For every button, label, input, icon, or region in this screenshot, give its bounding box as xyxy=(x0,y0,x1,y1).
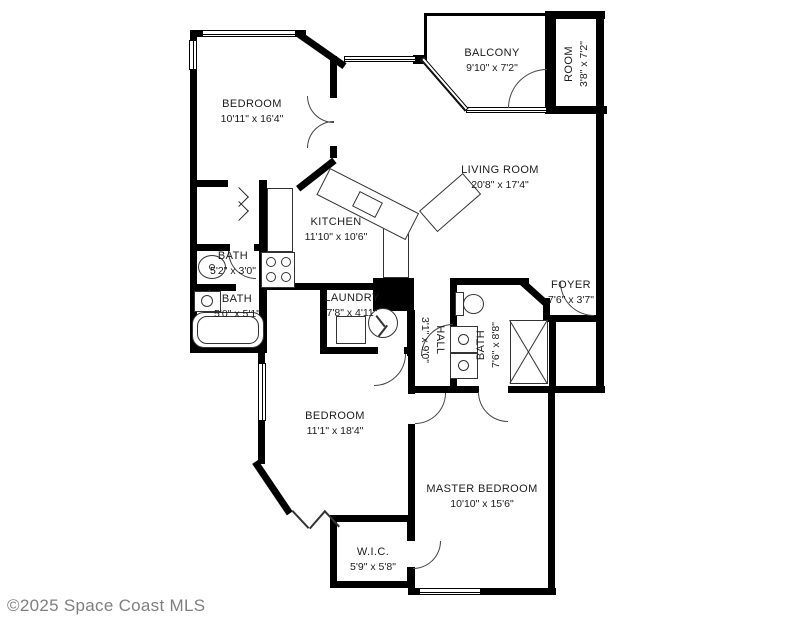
room-dims: 11'1" x 18'4" xyxy=(307,425,364,438)
sink-drain xyxy=(458,360,469,371)
room-label-master-bedroom: MASTER BEDROOM 10'10" x 15'6" xyxy=(426,483,537,511)
door-arc xyxy=(413,541,441,569)
room-name: BATH xyxy=(475,330,489,360)
room-label-bedroom-1: BEDROOM 10'11" x 16'4" xyxy=(221,98,284,126)
door-arc xyxy=(415,393,446,424)
room-dims: 10'11" x 16'4" xyxy=(221,113,284,126)
room-label-bath-2: BATH 5'0" x 5'1" xyxy=(214,293,260,321)
counter xyxy=(267,188,293,252)
wall xyxy=(549,315,601,322)
room-name: HALL xyxy=(432,325,446,354)
room-label-hall: HALL 3'1" x 9'0" xyxy=(418,317,446,363)
wall xyxy=(424,13,427,59)
wall xyxy=(330,515,337,588)
wall xyxy=(295,30,347,69)
room-label-foyer: FOYER 7'6" x 3'7" xyxy=(548,279,594,307)
wall xyxy=(330,515,415,522)
room-dims: 5'0" x 5'1" xyxy=(214,308,260,321)
room-name: FOYER xyxy=(551,279,591,293)
door-arc xyxy=(307,121,334,148)
copyright-watermark: ©2025 Space Coast MLS xyxy=(7,596,205,616)
stove xyxy=(261,252,295,288)
window xyxy=(202,30,296,37)
wall xyxy=(508,386,555,393)
washer xyxy=(336,316,366,344)
room-name: BEDROOM xyxy=(305,410,365,424)
room-label-balcony: BALCONY 9'10" x 7'2" xyxy=(464,47,519,75)
stove-burner xyxy=(281,257,291,267)
room-label-laundry: LAUNDRY 7'8" x 4'11" xyxy=(324,292,379,320)
room-label-wic: W.I.C. 5'9" x 5'8" xyxy=(350,546,396,574)
wall xyxy=(258,420,265,464)
door-arc xyxy=(307,96,334,123)
wall xyxy=(450,278,529,285)
wall xyxy=(596,11,604,392)
wall xyxy=(320,347,378,354)
room-name: LAUNDRY xyxy=(324,292,379,306)
window xyxy=(189,40,197,70)
sink-drain xyxy=(458,334,469,345)
room-dims: 20'8" x 17'4" xyxy=(471,179,529,192)
room-label-master-bath: BATH 7'6" x 8'8" xyxy=(475,322,503,368)
room-name: BATH xyxy=(222,293,252,307)
wall xyxy=(407,567,415,588)
room-dims: 11'10" x 10'6" xyxy=(305,231,368,244)
wall xyxy=(548,386,555,595)
window xyxy=(419,588,481,595)
room-name: BATH xyxy=(218,250,248,264)
stove-burner xyxy=(266,272,276,282)
room-name: MASTER BEDROOM xyxy=(426,483,537,497)
room-dims: 7'6" x 8'8" xyxy=(490,322,503,368)
room-name: BEDROOM xyxy=(222,98,282,112)
stove-burner xyxy=(281,272,291,282)
wall xyxy=(548,386,605,393)
room-dims: 3'8" x 7'2" xyxy=(578,41,591,87)
floor-plan: BEDROOM 10'11" x 16'4" BALCONY 9'10" x 7… xyxy=(0,0,797,640)
window xyxy=(344,56,416,62)
wall xyxy=(407,522,415,541)
wall xyxy=(545,106,607,114)
stove-burner xyxy=(266,257,276,267)
wall xyxy=(321,283,374,290)
room-label-bedroom-2: BEDROOM 11'1" x 18'4" xyxy=(305,410,365,438)
room-name: W.I.C. xyxy=(357,546,389,560)
room-dims: 10'10" x 15'6" xyxy=(450,498,513,511)
island-sink xyxy=(352,191,383,218)
wall xyxy=(549,316,556,388)
room-dims: 3'1" x 9'0" xyxy=(418,317,431,363)
wall xyxy=(330,581,415,588)
bifold-door-icon xyxy=(309,510,326,529)
room-dims: 7'8" x 4'11" xyxy=(327,307,378,320)
room-name: ROOM xyxy=(563,46,577,82)
room-name: LIVING ROOM xyxy=(461,164,539,178)
room-label-storage-room: ROOM 3'8" x 7'2" xyxy=(563,41,591,87)
room-name: BALCONY xyxy=(464,47,519,61)
wall xyxy=(408,386,479,393)
bifold-door-icon xyxy=(229,201,249,221)
wall xyxy=(330,56,337,98)
wall xyxy=(407,310,415,356)
wall xyxy=(252,460,292,515)
wall xyxy=(190,180,228,187)
bifold-door-icon xyxy=(292,510,310,529)
room-name: KITCHEN xyxy=(310,216,361,230)
wall xyxy=(408,424,415,523)
balcony-railing xyxy=(420,57,468,112)
toilet-bowl xyxy=(463,294,484,314)
wall xyxy=(408,353,415,394)
room-dims: 5'2" x 3'0" xyxy=(210,265,256,278)
room-label-bath-1: BATH 5'2" x 3'0" xyxy=(210,250,256,278)
room-dims: 5'9" x 5'8" xyxy=(350,561,396,574)
room-dims: 7'6" x 3'7" xyxy=(548,294,594,307)
room-label-living-room: LIVING ROOM 20'8" x 17'4" xyxy=(461,164,539,192)
door-arc xyxy=(478,392,508,422)
window xyxy=(258,363,266,421)
wall xyxy=(424,13,548,16)
sink-drain xyxy=(201,295,213,307)
door-arc xyxy=(374,354,406,386)
room-label-kitchen: KITCHEN 11'10" x 10'6" xyxy=(305,216,368,244)
room-dims: 9'10" x 7'2" xyxy=(466,62,518,75)
